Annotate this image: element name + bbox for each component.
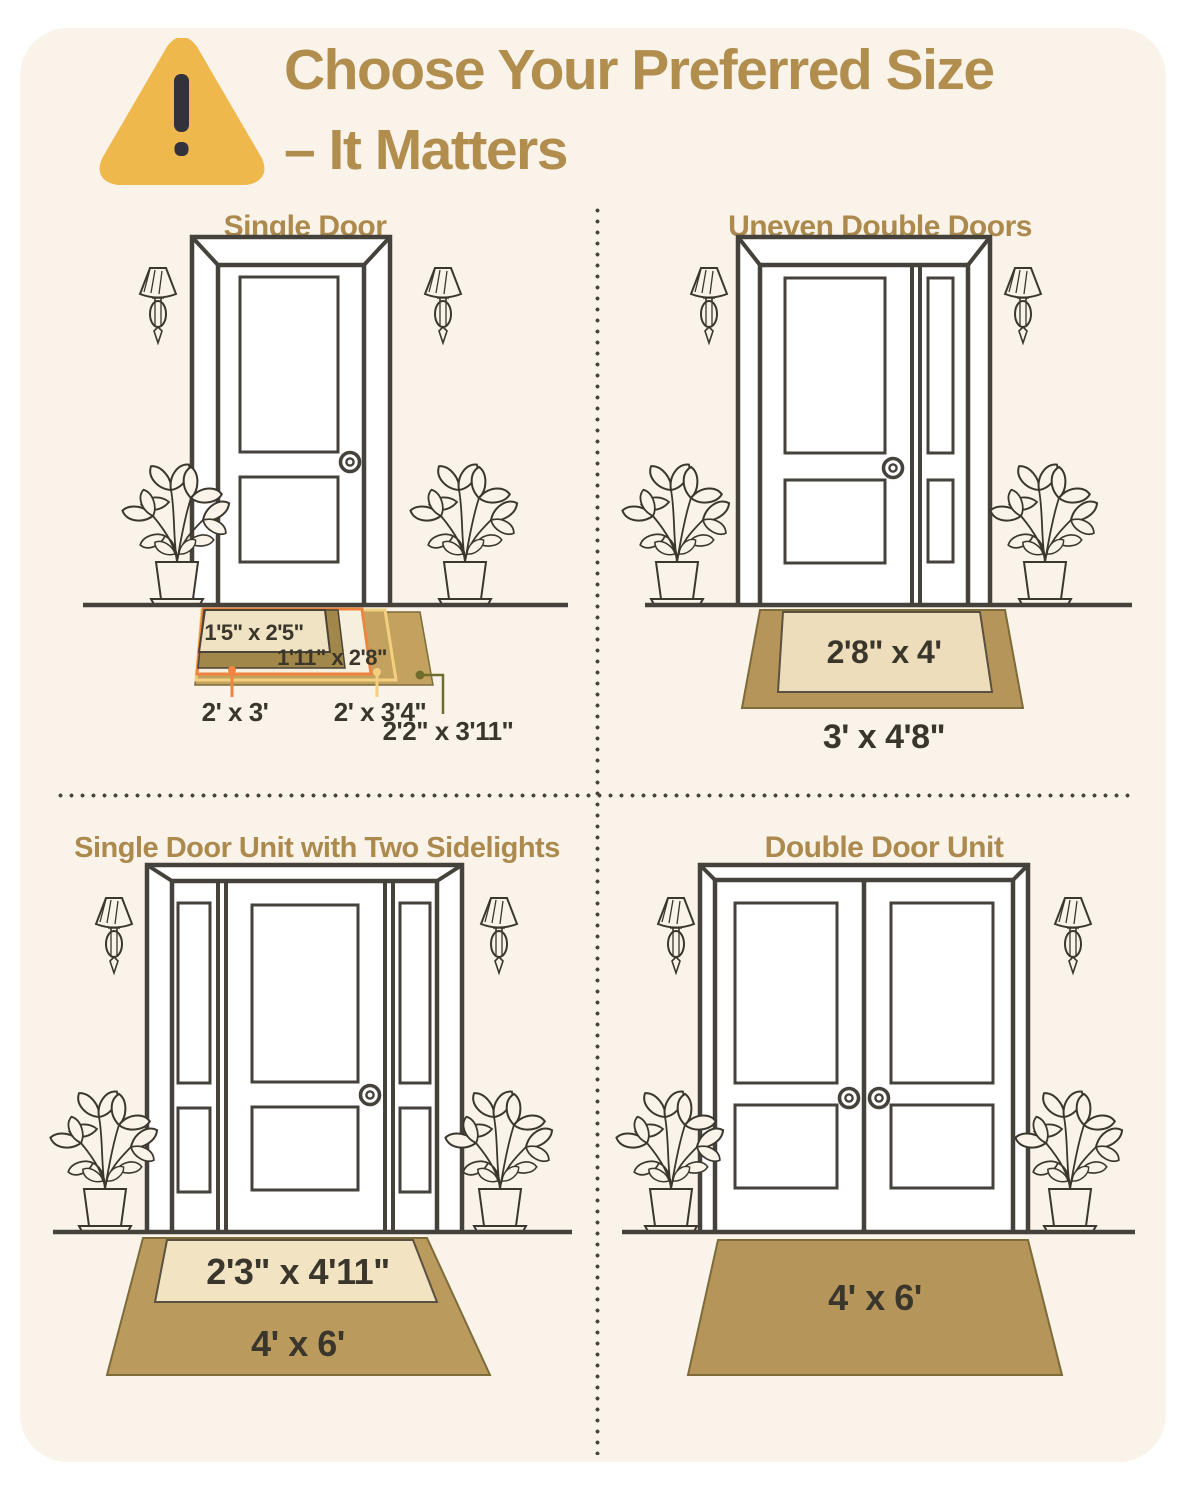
mat-size-label: 2'3" x 4'11": [206, 1251, 389, 1292]
wall-sconce-icon: [691, 268, 727, 343]
mat-size-label: 4' x 6': [251, 1323, 345, 1364]
mat-size-label: 2'8" x 4': [827, 634, 942, 670]
wall-sconce-icon: [140, 268, 176, 343]
page-title-line2: – It Matters: [284, 110, 994, 190]
double-door-unit-mat: 4' x 6': [688, 1240, 1062, 1375]
mat-size-label: 2'2" x 3'11": [383, 716, 514, 746]
double-door-illustration: [700, 865, 1028, 1232]
potted-plant-icon: [621, 461, 733, 606]
double-door-unit-title: Double Door Unit: [765, 831, 1004, 864]
mat-size-label: 2' x 3': [202, 697, 269, 727]
uneven-double-door-illustration: [738, 237, 990, 605]
wall-sconce-icon: [96, 898, 132, 973]
page-title-line1: Choose Your Preferred Size: [284, 30, 994, 110]
wall-sconce-icon: [658, 898, 694, 973]
quadrant-uneven-double-doors: Uneven Double Doors 2'8" x 4' 3' x 4'8": [597, 200, 1160, 795]
single-door-sidelights-illustration: [147, 865, 462, 1232]
potted-plant-icon: [409, 461, 521, 606]
mat-size-label: 1'5" x 2'5": [204, 620, 303, 645]
doormat-size-infographic: { "header": { "title_line1": "Choose You…: [0, 0, 1186, 1492]
wall-sconce-icon: [1005, 268, 1041, 343]
potted-plant-icon: [1014, 1088, 1126, 1233]
page-title: Choose Your Preferred Size – It Matters: [284, 30, 994, 190]
potted-plant-icon: [989, 461, 1101, 606]
wall-sconce-icon: [425, 268, 461, 343]
single-door-sidelights-mat: 2'3" x 4'11" 4' x 6': [107, 1238, 490, 1375]
single-door-mat-stack: 1'5" x 2'5" 1'11" x 2'8" 2' x 3' 2' x 3'…: [195, 609, 513, 746]
warning-triangle-icon: [98, 38, 266, 186]
quadrant-double-door-unit: Double Door Unit 4' x 6': [597, 795, 1160, 1462]
wall-sconce-icon: [481, 898, 517, 973]
potted-plant-icon: [49, 1088, 161, 1233]
single-door-illustration: [192, 237, 390, 605]
mat-size-label: 3' x 4'8": [823, 718, 945, 756]
mat-size-label: 4' x 6': [828, 1277, 922, 1318]
uneven-double-doors-mat: 2'8" x 4' 3' x 4'8": [742, 610, 1023, 756]
single-door-two-sidelights-title: Single Door Unit with Two Sidelights: [74, 832, 560, 864]
wall-sconce-icon: [1055, 898, 1091, 973]
quadrant-single-door-two-sidelights: Single Door Unit with Two Sidelights 2'3…: [28, 795, 597, 1462]
mat-size-label: 1'11" x 2'8": [277, 645, 387, 670]
quadrant-single-door: Single Door 1'5" x 2'5" 1'11" x 2'8" 2' …: [28, 200, 597, 795]
